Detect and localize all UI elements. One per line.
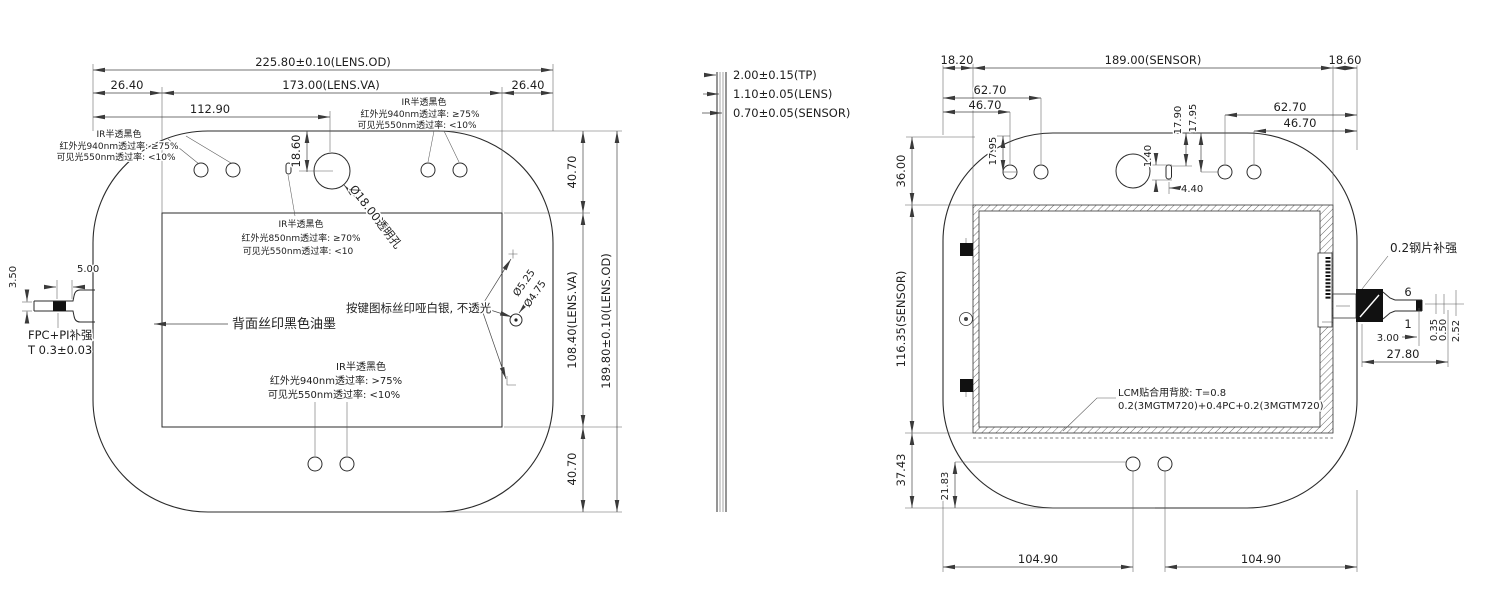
dim-slot-height: 1.40 [1143, 145, 1154, 167]
svg-text:可见光550nm透过率: <10%: 可见光550nm透过率: <10% [357, 119, 477, 131]
note-lcm-line1: LCM贴合用背胶: T=0.8 [1118, 386, 1226, 399]
svg-text:IR半透黑色: IR半透黑色 [336, 360, 386, 373]
dim-stack-sensor: 0.70±0.05(SENSOR) [733, 106, 850, 120]
dim-slot-y2: 17.95 [1188, 104, 1199, 133]
ir-led-hole-bottom [308, 457, 322, 471]
note-fpc-stiffener: FPC+PI补强 [28, 328, 93, 342]
profile-dimension-lines [702, 75, 722, 113]
dim-slot-offset: 4.40 [1181, 184, 1203, 195]
side-pad [960, 243, 973, 256]
dim-sensor-height: 116.35(SENSOR) [894, 271, 908, 368]
register-plus-mark [509, 250, 518, 259]
front-view: 225.80±0.10(LENS.OD) 173.00(LENS.VA) 26.… [8, 55, 622, 512]
dim-fpc-width: 5.00 [77, 264, 99, 275]
svg-text:IR半透黑色: IR半透黑色 [279, 218, 324, 230]
dim-lens-va-height: 108.40(LENS.VA) [565, 271, 579, 368]
note-ir-center: IR半透黑色 红外光850nm透过率: ≥70% 可见光550nm透过率: <1… [241, 218, 361, 257]
note-back-ink: 背面丝印黑色油墨 [232, 316, 336, 332]
dim-hole-bottom-y: 21.83 [940, 472, 951, 501]
ir-led-hole-bottom-back [1158, 457, 1172, 471]
note-fpc-thickness: T 0.3±0.03 [27, 343, 92, 357]
dim-sensor-margin-left: 18.20 [941, 53, 974, 67]
key-icon-center-dot [514, 318, 517, 321]
ir-led-hole-back [1218, 165, 1232, 179]
dim-sensor-top-margin: 36.00 [894, 155, 908, 188]
dim-fpc-length: 27.80 [1387, 347, 1420, 361]
dim-fpc-t3: 2.52 [1451, 320, 1462, 342]
back-view: 18.20 189.00(SENSOR) 18.60 62.70 46.70 1… [894, 53, 1464, 572]
dim-lens-va-width: 173.00(LENS.VA) [282, 78, 379, 92]
svg-text:红外光940nm透过率: >75%: 红外光940nm透过率: >75% [270, 374, 402, 387]
ir-led-hole-back [1247, 165, 1261, 179]
profile-geometry [717, 72, 726, 512]
dim-hole-bottom-left: 104.90 [1018, 552, 1058, 566]
dim-hole-x: 112.90 [190, 102, 230, 116]
dim-sensor-margin-right: 18.60 [1329, 53, 1362, 67]
note-key-icon: 按键图标丝印哑白银, 不透光 [346, 301, 492, 315]
dim-margin-right: 26.40 [512, 78, 545, 92]
note-ir-top-left: IR半透黑色 红外光940nm透过率: ≥75% 可见光550nm透过率: <1… [56, 128, 179, 163]
svg-text:可见光550nm透过率: <10%: 可见光550nm透过率: <10% [56, 151, 176, 163]
ir-led-hole [421, 163, 435, 177]
dim-margin-bottom: 40.70 [565, 453, 579, 486]
steel-leader [1362, 256, 1388, 289]
ir-led-hole [453, 163, 467, 177]
dim-hole-right-far: 62.70 [1274, 100, 1307, 114]
dim-sensor-width: 189.00(SENSOR) [1105, 53, 1202, 67]
dim-hole-left-far: 62.70 [974, 83, 1007, 97]
ir-led-hole [226, 163, 240, 177]
ir-led-hole-bottom [340, 457, 354, 471]
dim-hole-y: 18.60 [289, 135, 303, 168]
ir-led-hole [194, 163, 208, 177]
svg-text:红外光850nm透过率: ≥70%: 红外光850nm透过率: ≥70% [241, 232, 361, 244]
note-lcm-line2: 0.2(3MGTM720)+0.4PC+0.2(3MGTM720) [1118, 401, 1324, 412]
dim-stack-tp: 2.00±0.15(TP) [733, 68, 817, 82]
dim-hole-bottom-right: 104.90 [1241, 552, 1281, 566]
dim-hole-left-y: 17.95 [988, 137, 999, 166]
fpc-neck [1383, 292, 1395, 319]
front-view-leaders [58, 131, 529, 456]
svg-text:IR半透黑色: IR半透黑色 [402, 96, 447, 108]
ir-led-hole-back [1034, 165, 1048, 179]
side-pad [960, 379, 973, 392]
svg-text:红外光940nm透过率: ≥75%: 红外光940nm透过率: ≥75% [59, 140, 179, 152]
note-ir-bottom: IR半透黑色 红外光940nm透过率: >75% 可见光550nm透过率: <1… [268, 360, 402, 401]
label-pin-first: 6 [1404, 285, 1411, 299]
dim-corner-bottom: 37.43 [894, 454, 908, 487]
svg-text:红外光940nm透过率: ≥75%: 红外光940nm透过率: ≥75% [360, 108, 480, 120]
engineering-drawing-page: 225.80±0.10(LENS.OD) 173.00(LENS.VA) 26.… [0, 0, 1497, 592]
dim-stack-lens: 1.10±0.05(LENS) [733, 87, 832, 101]
label-pin-last: 1 [1404, 317, 1411, 331]
svg-text:IR半透黑色: IR半透黑色 [97, 128, 142, 140]
dim-slot-y1: 17.90 [1173, 106, 1184, 135]
dim-lens-od-height: 189.80±0.10(LENS.OD) [599, 253, 613, 389]
dim-margin-top: 40.70 [565, 156, 579, 189]
note-ir-top-right: IR半透黑色 红外光940nm透过率: ≥75% 可见光550nm透过率: <1… [357, 96, 480, 131]
note-steel-stiffener: 0.2钢片补强 [1390, 241, 1457, 255]
mic-slot-back [1166, 165, 1172, 179]
dim-fpc-t2: 0.50 [1438, 319, 1449, 341]
svg-text:可见光550nm透过率: <10: 可见光550nm透过率: <10 [243, 245, 354, 257]
fpc-stiffener-front [53, 302, 66, 312]
svg-text:可见光550nm透过率: <10%: 可见光550nm透过率: <10% [268, 388, 400, 401]
ir-led-hole-bottom-back [1126, 457, 1140, 471]
dim-hole-right-near: 46.70 [1284, 116, 1317, 130]
dim-fpc-end: 3.00 [1377, 333, 1399, 344]
register-l-mark [507, 376, 516, 385]
dim-hole-left-near: 46.70 [969, 98, 1002, 112]
dim-lens-od-width: 225.80±0.10(LENS.OD) [255, 55, 391, 69]
stack-profile-view: 2.00±0.15(TP) 1.10±0.05(LENS) 0.70±0.05(… [702, 68, 850, 512]
dim-fpc-height: 3.50 [8, 266, 19, 288]
dim-margin-left: 26.40 [111, 78, 144, 92]
engineering-drawing-canvas: 225.80±0.10(LENS.OD) 173.00(LENS.VA) 26.… [0, 0, 1497, 592]
